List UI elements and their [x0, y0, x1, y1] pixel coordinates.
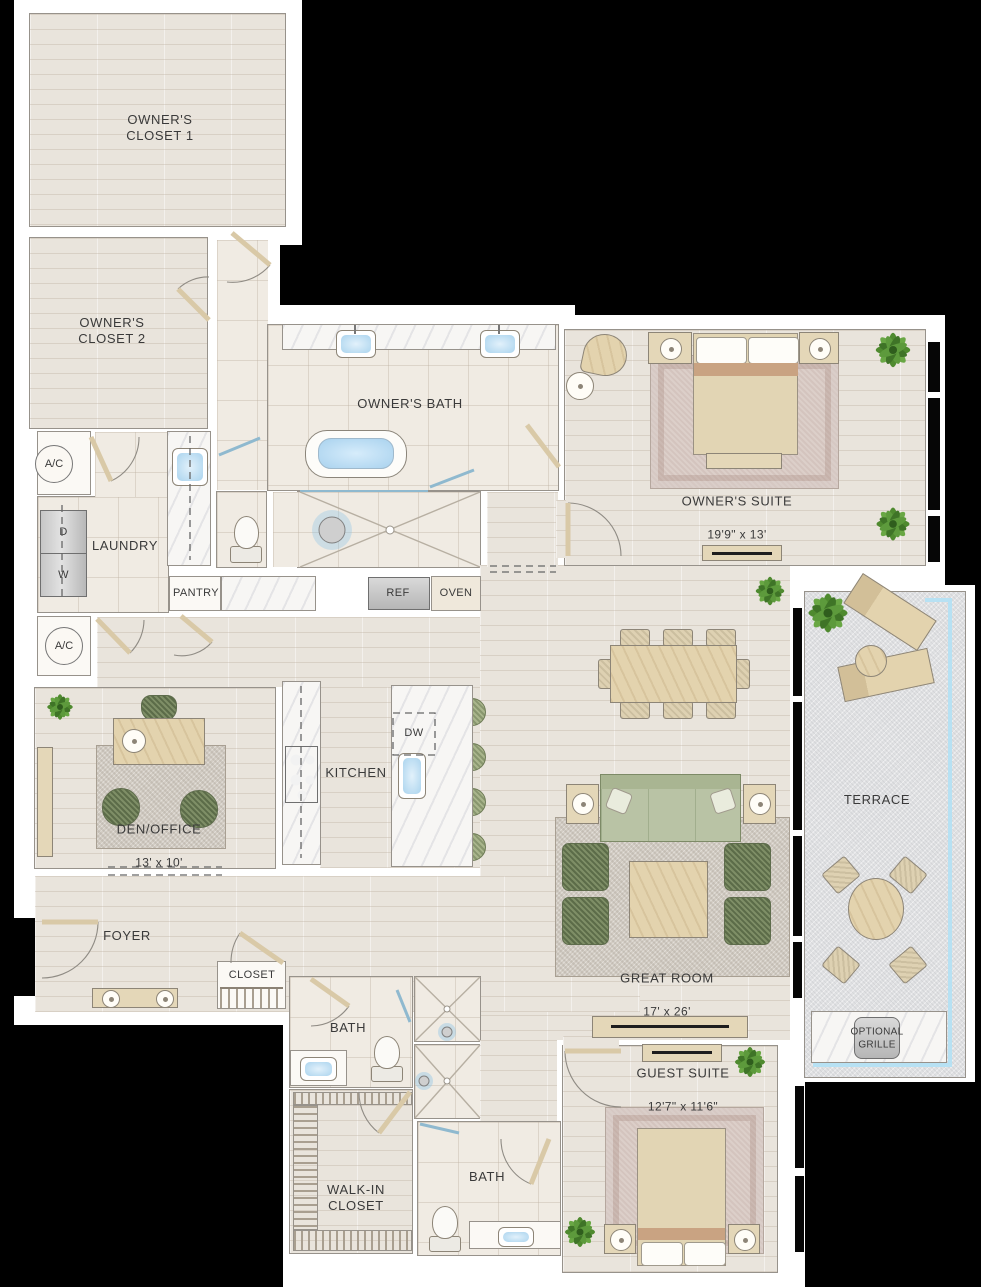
terrace-dining-table: [848, 878, 904, 940]
room-name: DEN/OFFICE: [117, 822, 202, 838]
room-name: GUEST SUITE: [636, 1066, 729, 1082]
closet-rack-top: [293, 1092, 412, 1105]
washer: W: [40, 553, 87, 597]
nightstand-lamp: [809, 338, 831, 360]
floor-shower-1: [415, 977, 480, 1041]
room-label-guest-suite: GUEST SUITE 12'7" x 11'6": [636, 1050, 729, 1131]
bath-upper-sink: [300, 1057, 337, 1081]
bed-pillow: [748, 337, 799, 364]
dryer-label: D: [59, 526, 67, 538]
floor-laundry-upper: [95, 432, 168, 497]
room-dims: 13' x 10': [117, 855, 202, 870]
closet-rod: [220, 987, 283, 1008]
armchair: [562, 897, 609, 945]
desk-lamp: [122, 729, 146, 753]
room-label-pantry: PANTRY: [173, 587, 219, 601]
bed-bench: [706, 453, 782, 469]
floor-suite-hall: [487, 492, 558, 567]
room-label-den-office: DEN/OFFICE 13' x 10': [117, 806, 202, 887]
room-dims: 19'9" x 13': [682, 527, 793, 542]
room-label-owners-bath: OWNER'S BATH: [357, 396, 463, 412]
bath-lower-sink: [498, 1227, 534, 1247]
dining-chair: [706, 701, 736, 719]
floor-owners-shower: [298, 492, 480, 567]
toilet-bowl-wc: [234, 516, 259, 549]
entry-opening: [8, 918, 35, 996]
room-dims: 17' x 26': [620, 1004, 714, 1019]
room-label-laundry: LAUNDRY: [92, 538, 158, 554]
den-credenza: [37, 747, 53, 857]
armchair: [724, 897, 771, 945]
console-lamp: [102, 990, 120, 1008]
dining-chair: [663, 701, 693, 719]
armchair: [724, 843, 771, 891]
room-label-walk-in-closet: WALK-IN CLOSET: [327, 1182, 385, 1215]
guest-blanket-band: [638, 1228, 725, 1240]
ac-label: A/C: [45, 458, 63, 470]
bed-pillow: [684, 1242, 726, 1266]
nightstand-lamp: [734, 1229, 756, 1251]
bathtub-water: [318, 438, 394, 469]
ac-unit-1: A/C: [35, 445, 73, 483]
closet-rack-bottom: [293, 1230, 412, 1251]
floor-bath-hall: [217, 240, 268, 490]
toilet-bowl-upper: [374, 1036, 400, 1069]
floor-shower-2: [415, 1045, 480, 1118]
floor-plan: D W A/C A/C: [0, 0, 981, 1287]
room-label-owners-closet-2: OWNER'S CLOSET 2: [78, 315, 145, 348]
room-label-owners-suite: OWNER'S SUITE 19'9" x 13': [682, 478, 793, 559]
fixture-label-optional-grille: OPTIONAL GRILLE: [851, 1027, 904, 1052]
coffee-table: [629, 861, 708, 938]
floor-kitchen-top: [228, 617, 480, 687]
room-label-foyer: FOYER: [103, 928, 151, 944]
fixture-label-dw: DW: [404, 727, 423, 741]
room-label-bath-upper: BATH: [330, 1020, 366, 1036]
room-label-terrace: TERRACE: [844, 792, 910, 808]
toilet-bowl-lower: [432, 1206, 458, 1239]
floor-hall-kitchen: [97, 617, 228, 688]
laundry-sink: [172, 448, 208, 486]
floor-guest-hall: [480, 1040, 557, 1122]
bed-pillow: [641, 1242, 683, 1266]
vanity-sink-left: [336, 330, 376, 358]
fixture-label-ref: REF: [386, 587, 409, 601]
room-name: GREAT ROOM: [620, 971, 714, 987]
bed-pillow: [696, 337, 747, 364]
dryer: D: [40, 510, 87, 554]
vanity-sink-right: [480, 330, 520, 358]
floor-shower-nook: [273, 492, 298, 567]
room-label-closet: CLOSET: [229, 969, 275, 983]
washer-label: W: [58, 569, 69, 581]
suite-side-table: [566, 372, 594, 400]
nightstand-lamp: [660, 338, 682, 360]
room-label-kitchen: KITCHEN: [325, 765, 386, 781]
closet-rack-left: [293, 1105, 318, 1230]
terrace-side-table: [855, 645, 887, 677]
room-label-great-room: GREAT ROOM 17' x 26': [620, 955, 714, 1036]
side-table-lamp: [749, 793, 771, 815]
side-table-lamp: [572, 793, 594, 815]
room-label-bath-lower: BATH: [469, 1169, 505, 1185]
cooktop: [285, 746, 318, 803]
threshold-suite: [556, 500, 566, 558]
nightstand-lamp: [610, 1229, 632, 1251]
bed-blanket-band: [694, 363, 798, 376]
ac-unit-2: A/C: [45, 627, 83, 665]
armchair: [562, 843, 609, 891]
dining-table: [610, 645, 737, 703]
island-sink: [398, 753, 426, 799]
ac-label: A/C: [55, 640, 73, 652]
room-name: OWNER'S SUITE: [682, 494, 793, 510]
room-label-owners-closet-1: OWNER'S CLOSET 1: [126, 112, 193, 145]
room-dims: 12'7" x 11'6": [636, 1099, 729, 1114]
console-lamp: [156, 990, 174, 1008]
fixture-label-oven: OVEN: [440, 587, 473, 601]
dining-chair: [620, 701, 650, 719]
kitchen-counter-top: [222, 577, 315, 610]
